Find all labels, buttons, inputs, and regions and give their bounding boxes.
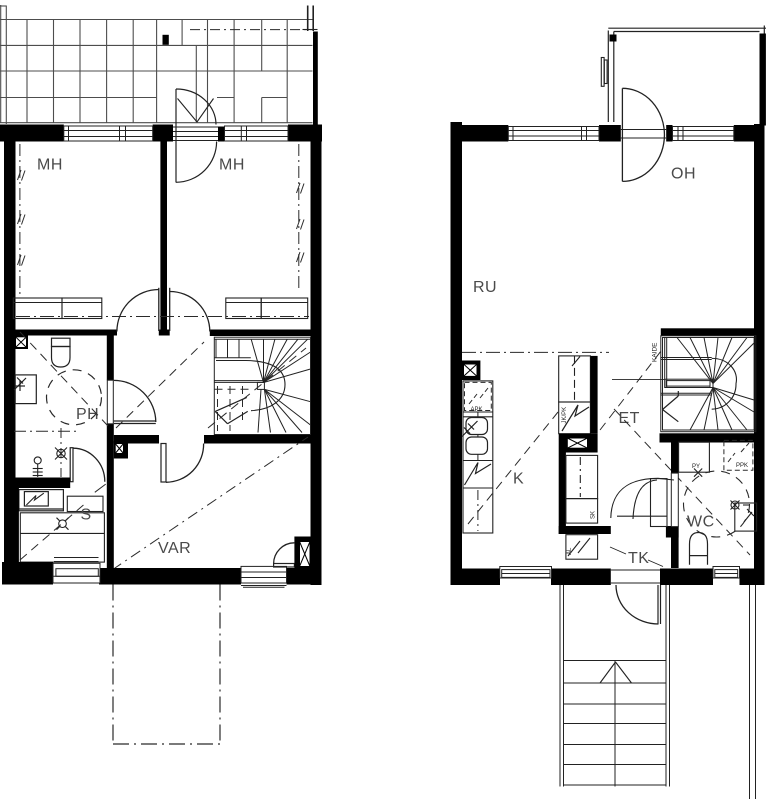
svg-text:VAR: VAR [158,540,191,557]
svg-text:PH: PH [76,406,99,423]
svg-text:TK: TK [628,550,649,567]
svg-text:S: S [81,507,92,524]
svg-text:PY: PY [692,464,700,470]
svg-text:K: K [513,471,524,488]
svg-text:KAIDE: KAIDE [652,342,659,362]
svg-text:AL: AL [567,547,573,555]
svg-text:OH: OH [671,166,696,183]
svg-text:SK: SK [591,511,597,519]
svg-text:WC: WC [687,514,715,531]
svg-text:PPK: PPK [736,463,748,469]
svg-text:MH: MH [37,157,63,174]
svg-text:ET: ET [619,410,640,427]
svg-text:MH: MH [219,157,245,174]
svg-text:RU: RU [473,279,497,296]
svg-text:APK: APK [471,407,483,413]
svg-text:JK/PK: JK/PK [562,407,568,424]
